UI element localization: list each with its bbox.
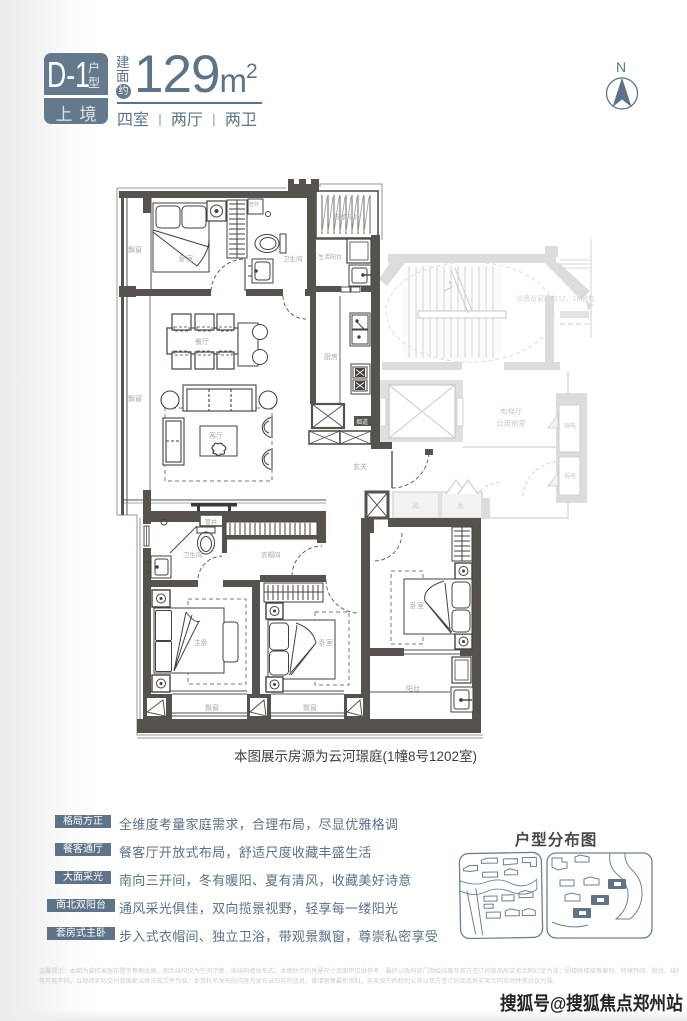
svg-text:卧室: 卧室 <box>319 638 333 647</box>
svg-text:衣帽间: 衣帽间 <box>261 550 281 559</box>
svg-text:飘窗: 飘窗 <box>303 703 317 712</box>
svg-text:玄关: 玄关 <box>353 462 367 471</box>
svg-text:生活阳台: 生活阳台 <box>318 253 342 261</box>
svg-text:餐厅: 餐厅 <box>195 337 209 346</box>
svg-text:管井: 管井 <box>249 201 259 208</box>
svg-text:强电: 强电 <box>564 422 576 430</box>
svg-text:电梯厅: 电梯厅 <box>500 406 523 416</box>
svg-text:风: 风 <box>412 502 419 510</box>
svg-text:阳台: 阳台 <box>406 684 420 693</box>
svg-text:主卧: 主卧 <box>194 638 208 647</box>
svg-text:设备平台: 设备平台 <box>334 212 360 221</box>
svg-text:厨房: 厨房 <box>324 352 338 361</box>
svg-text:客厅: 客厅 <box>209 431 223 440</box>
svg-text:飘窗: 飘窗 <box>128 245 142 254</box>
svg-text:N: N <box>616 59 626 75</box>
svg-text:卫生间: 卫生间 <box>283 254 303 263</box>
svg-text:管井: 管井 <box>205 518 217 526</box>
svg-text:卧室: 卧室 <box>410 601 424 610</box>
svg-text:水: 水 <box>457 501 464 510</box>
svg-text:该墙及窗门仅12、16层有: 该墙及窗门仅12、16层有 <box>516 294 595 303</box>
svg-text:卧室: 卧室 <box>179 254 193 263</box>
svg-text:飘窗: 飘窗 <box>128 394 142 403</box>
svg-text:烟道: 烟道 <box>356 418 368 426</box>
svg-text:卫生间: 卫生间 <box>183 550 203 559</box>
svg-text:弱电: 弱电 <box>564 472 576 480</box>
svg-text:飘窗: 飘窗 <box>205 703 219 712</box>
svg-text:公用前室: 公用前室 <box>496 418 526 428</box>
